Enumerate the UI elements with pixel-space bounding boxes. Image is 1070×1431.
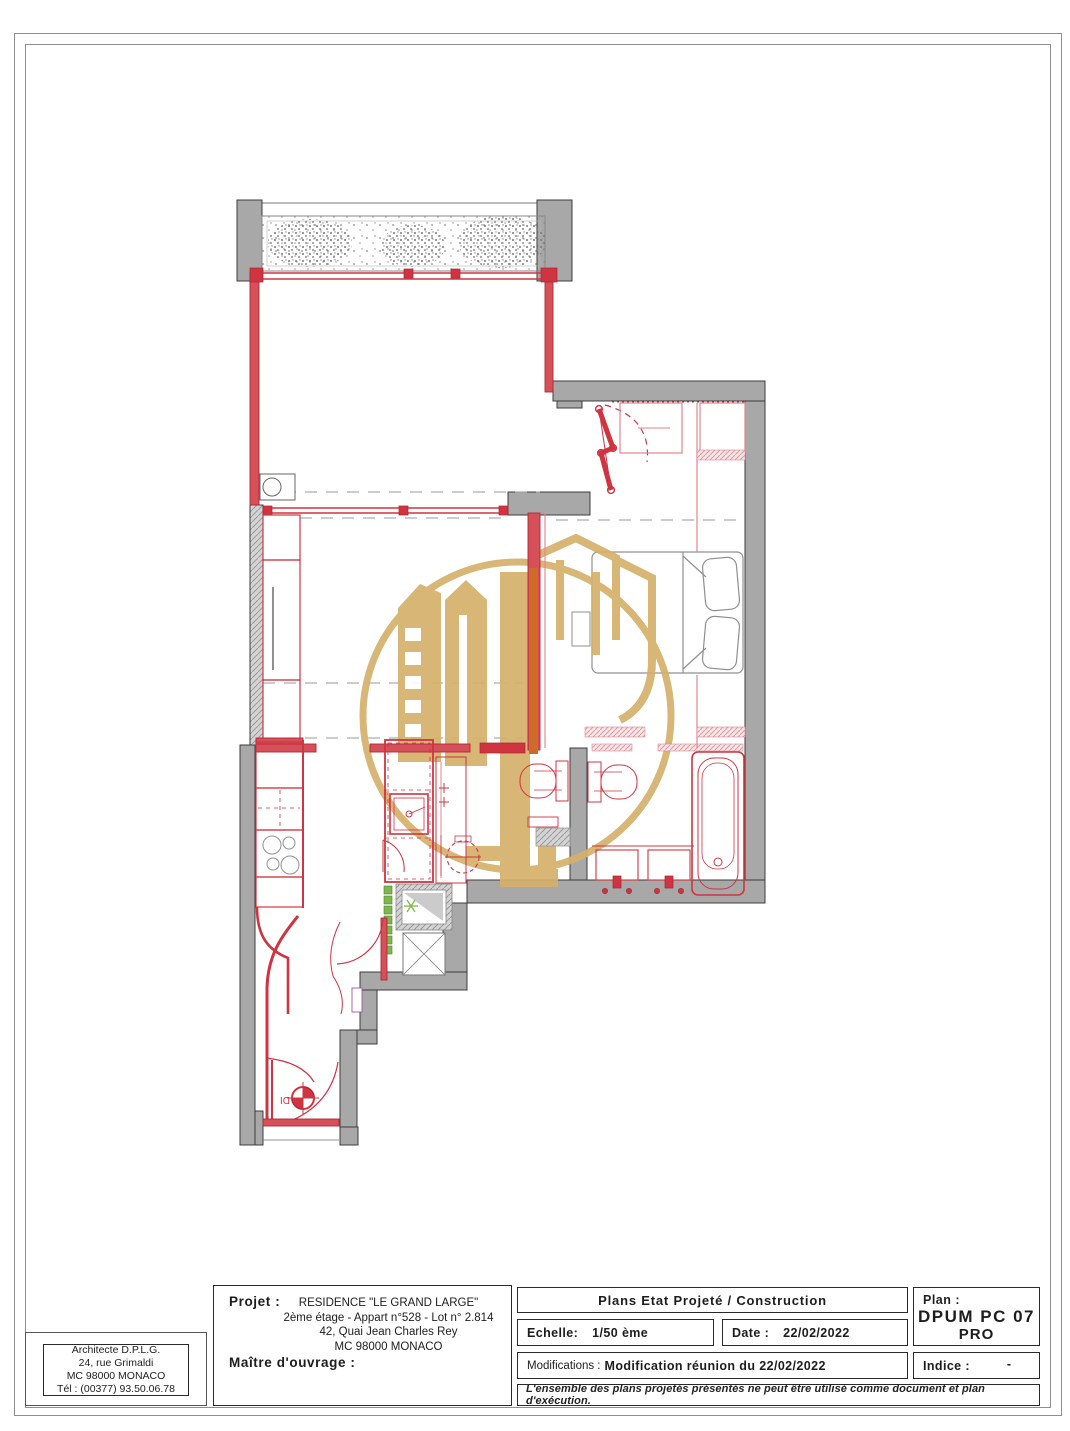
disclaimer-box: L'ensemble des plans projetés présentés … [517, 1384, 1040, 1406]
architect-block: Architecte D.P.L.G. 24, rue Grimaldi MC … [25, 1332, 207, 1406]
project-block: Projet : RESIDENCE "LE GRAND LARGE" 2ème… [213, 1285, 512, 1406]
architect-line: Architecte D.P.L.G. [72, 1344, 161, 1357]
date-label: Date : [732, 1326, 769, 1340]
project-line: MC 98000 MONACO [274, 1340, 503, 1355]
plan-sheet: DI Architecte D.P.L.G. 24, rue Grimaldi … [0, 0, 1070, 1431]
plan-ref-phase: PRO [914, 1326, 1039, 1343]
modifications-value: Modification réunion du 22/02/2022 [605, 1359, 826, 1373]
scale-value: 1/50 ème [592, 1326, 648, 1340]
modifications-box: Modifications : Modification réunion du … [517, 1352, 908, 1379]
architect-stamp: Architecte D.P.L.G. 24, rue Grimaldi MC … [43, 1344, 189, 1396]
plan-ref-code: DPUM PC 07 [914, 1307, 1039, 1327]
project-line: RESIDENCE "LE GRAND LARGE" [274, 1296, 503, 1311]
date-box: Date : 22/02/2022 [722, 1319, 908, 1346]
scale-box: Echelle: 1/50 ème [517, 1319, 714, 1346]
scale-label: Echelle: [527, 1326, 578, 1340]
disclaimer-text: L'ensemble des plans projetés présentés … [526, 1383, 1039, 1407]
project-label: Projet : [229, 1294, 280, 1309]
indice-box: Indice : - [913, 1352, 1040, 1379]
architect-line: Tél : (00377) 93.50.06.78 [57, 1383, 175, 1396]
project-address: RESIDENCE "LE GRAND LARGE" 2ème étage - … [274, 1296, 503, 1355]
plan-ref-box: Plan : DPUM PC 07 PRO [913, 1287, 1040, 1346]
project-line: 2ème étage - Appart n°528 - Lot n° 2.814 [274, 1311, 503, 1326]
architect-line: MC 98000 MONACO [67, 1370, 166, 1383]
owner-label: Maître d'ouvrage : [229, 1355, 356, 1370]
architect-line: 24, rue Grimaldi [79, 1357, 154, 1370]
date-value: 22/02/2022 [783, 1326, 850, 1340]
sheet-frame-inner [25, 44, 1051, 1408]
project-line: 42, Quai Jean Charles Rey [274, 1325, 503, 1340]
indice-value: - [1007, 1357, 1011, 1371]
indice-label: Indice : [923, 1359, 970, 1373]
plan-title: Plans Etat Projeté / Construction [598, 1293, 827, 1308]
modifications-label: Modifications : [527, 1360, 601, 1372]
plan-ref-label: Plan : [923, 1293, 960, 1307]
plan-title-box: Plans Etat Projeté / Construction [517, 1287, 908, 1313]
